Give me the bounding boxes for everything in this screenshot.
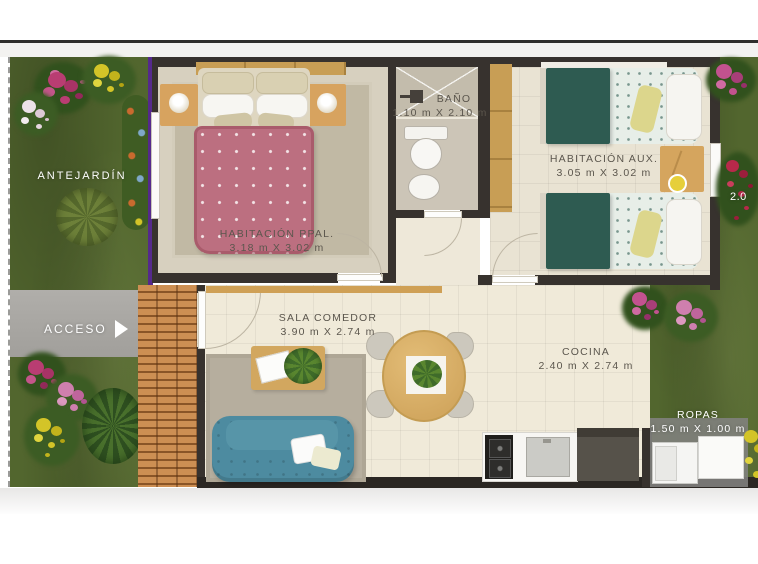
room-name: BAÑO xyxy=(392,92,487,106)
room-dimensions: 3.90 m X 2.74 m xyxy=(279,325,377,339)
kitchen-label: COCINA 2.40 m X 2.74 m xyxy=(538,345,633,373)
acceso-label: ACCESO xyxy=(44,322,107,336)
white-flower-cluster xyxy=(22,100,36,113)
wall-bathroom-bottom-right xyxy=(460,210,478,218)
living-console-strip xyxy=(206,286,442,293)
acceso-arrow-icon xyxy=(115,320,128,338)
aux-bedroom-label: HABITACIÓN AUX. 3.05 m X 3.02 m xyxy=(550,152,658,180)
laundry-sink-unit xyxy=(698,436,744,479)
kitchen-sink xyxy=(526,437,570,477)
table-plant xyxy=(284,348,322,384)
room-dimensions: 1.10 m X 2.10 m xyxy=(392,106,487,120)
bush xyxy=(622,286,668,330)
bush xyxy=(664,292,718,342)
acceso-label-group: ACCESO xyxy=(44,320,128,338)
wall-aux-bottom-stub xyxy=(478,275,492,285)
stove-burner xyxy=(489,459,511,478)
dining-table-plant xyxy=(412,360,442,388)
room-name: COCINA xyxy=(538,345,633,359)
yellow-flower-cluster xyxy=(744,430,758,443)
aux-lamp xyxy=(668,174,687,193)
wall-bathroom-bottom-left xyxy=(388,210,424,218)
tile-path xyxy=(138,285,197,487)
pink-flower-cluster xyxy=(716,64,732,79)
wall-living-left xyxy=(197,347,205,477)
red-flower-cluster xyxy=(726,160,739,172)
yellow-flower-cluster xyxy=(36,418,51,432)
room-name: ROPAS xyxy=(650,408,745,422)
sink-bowl xyxy=(408,174,440,200)
washer-door xyxy=(655,446,677,481)
border-plant-strip xyxy=(122,95,150,230)
aux-closet xyxy=(490,64,512,212)
wall-bathroom-aux xyxy=(478,57,490,218)
living-dining-label: SALA COMEDOR 3.90 m X 2.74 m xyxy=(279,311,377,339)
pink-flower-cluster xyxy=(676,300,692,315)
aux-bed-2-pillow xyxy=(666,199,702,265)
wall-bedroom-bathroom xyxy=(388,57,396,283)
room-dimensions: 3.05 m X 3.02 m xyxy=(550,166,658,180)
stove-burner xyxy=(489,439,511,458)
room-dimensions: 3.18 m X 3.02 m xyxy=(220,241,335,255)
lamp-left xyxy=(169,93,189,113)
palm-plant xyxy=(82,388,144,464)
aux-bed-2-blanket xyxy=(546,193,610,269)
main-bedroom-label: HABITACIÓN PPAL. 3.18 m X 3.02 m xyxy=(220,227,335,255)
room-dimensions: 2.40 m X 2.74 m xyxy=(538,359,633,373)
window-main-bedroom xyxy=(151,112,160,219)
room-name: SALA COMEDOR xyxy=(279,311,377,325)
room-name: HABITACIÓN AUX. xyxy=(550,152,658,166)
wall-main-bedroom-bottom xyxy=(152,273,338,283)
antejardin-label: ANTEJARDÍN xyxy=(37,170,126,182)
bathroom-door xyxy=(424,211,462,218)
bush xyxy=(14,92,58,136)
bathroom-label: BAÑO 1.10 m X 2.10 m xyxy=(392,92,487,120)
top-band xyxy=(0,43,758,57)
pink-flower-cluster xyxy=(58,382,74,397)
edge-dimension-label: 2.0 xyxy=(730,191,747,203)
magenta-flower-cluster xyxy=(632,292,647,306)
round-leaf-plant xyxy=(56,188,118,246)
laundry-label: ROPAS 1.50 m X 1.00 m xyxy=(650,408,745,436)
lamp-right xyxy=(317,93,337,113)
bottom-shadow-band xyxy=(0,488,758,514)
magenta-flower-cluster xyxy=(48,72,66,88)
wall-aux-bottom xyxy=(535,275,720,285)
pillow xyxy=(256,72,308,94)
aux-bed-1-blanket xyxy=(546,68,610,144)
bush xyxy=(706,58,756,102)
room-name: HABITACIÓN PPAL. xyxy=(220,227,335,241)
room-dimensions: 1.50 m X 1.00 m xyxy=(650,422,745,436)
fridge xyxy=(577,428,639,481)
bush xyxy=(24,406,80,466)
magenta-flower-cluster xyxy=(28,360,44,375)
sink-faucet xyxy=(543,439,551,443)
pillow xyxy=(202,72,254,94)
aux-bed-1-pillow xyxy=(666,74,702,140)
toilet-bowl xyxy=(410,138,442,170)
floor-plan-canvas: ANTEJARDÍN ACCESO HABITACIÓN PPAL. 3.18 … xyxy=(0,0,758,564)
yellow-flower-cluster xyxy=(94,64,109,78)
